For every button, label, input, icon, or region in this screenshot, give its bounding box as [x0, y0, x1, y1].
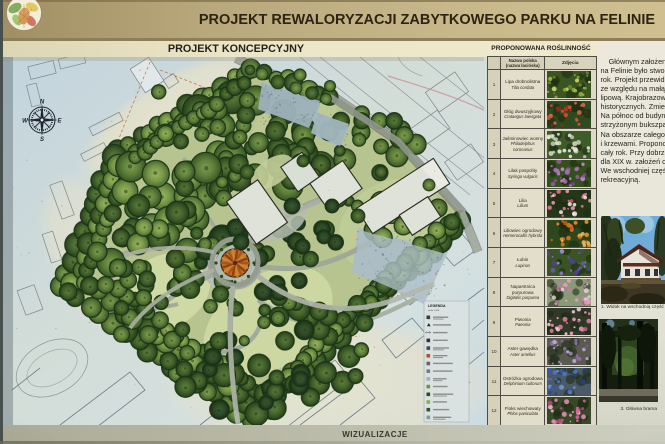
svg-text:S: S	[40, 137, 44, 143]
svg-text:skala 1:500: skala 1:500	[428, 310, 440, 312]
svg-text:N: N	[40, 100, 45, 106]
svg-text:LEGENDA: LEGENDA	[428, 304, 446, 308]
